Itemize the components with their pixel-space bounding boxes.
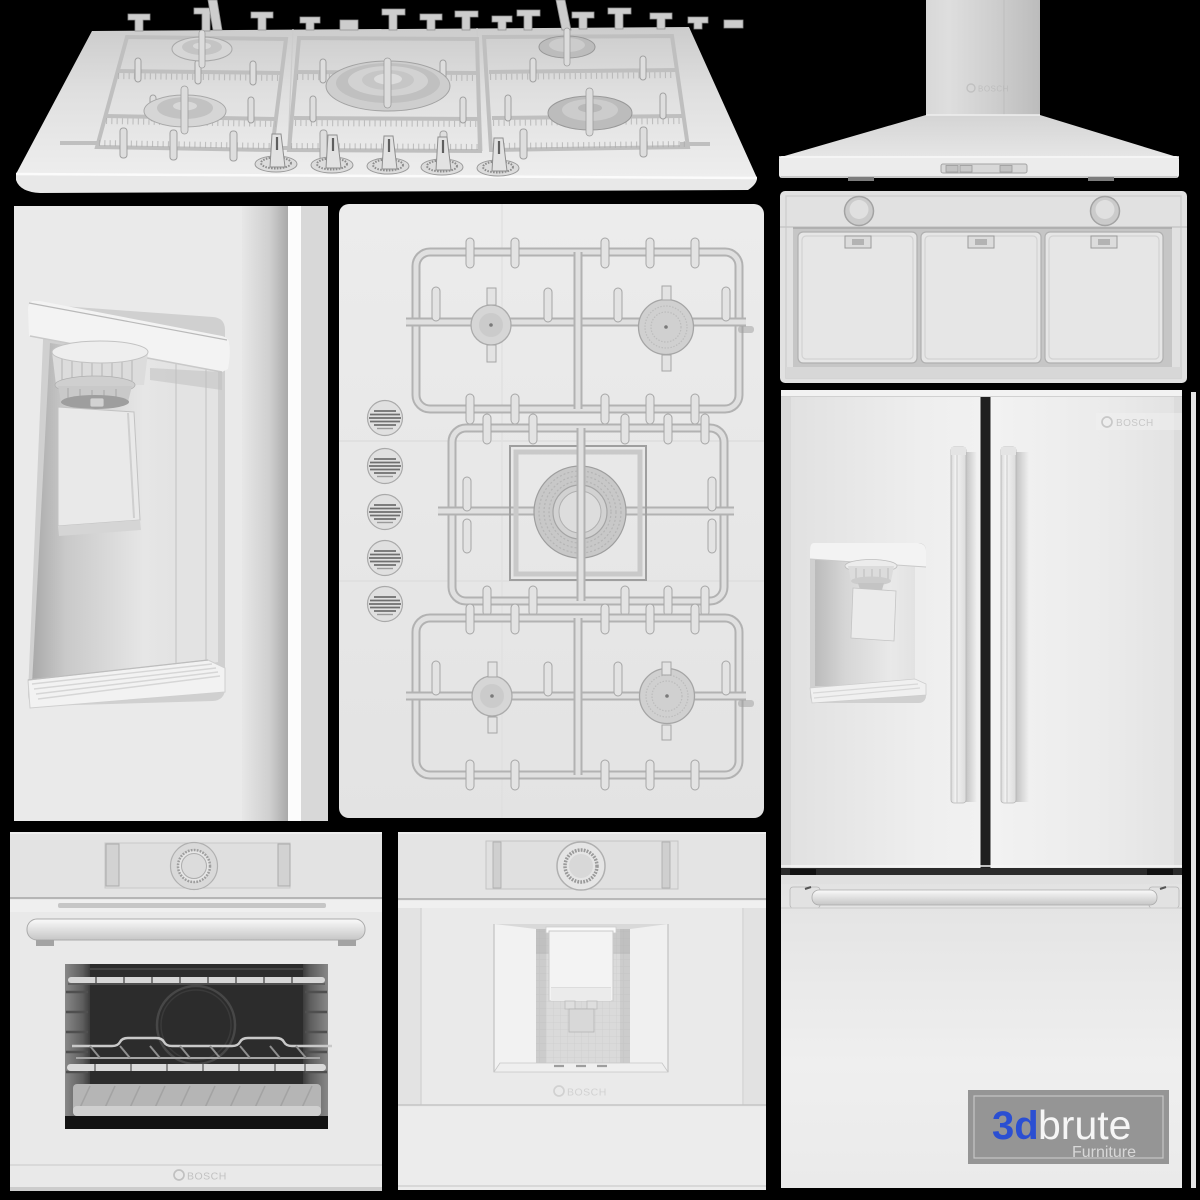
svg-text:3d: 3d (992, 1104, 1039, 1148)
svg-text:BOSCH: BOSCH (978, 85, 1009, 94)
svg-text:brute: brute (1038, 1102, 1131, 1148)
svg-text:BOSCH: BOSCH (567, 1087, 607, 1099)
svg-text:BOSCH: BOSCH (1116, 418, 1154, 429)
svg-text:BOSCH: BOSCH (187, 1171, 227, 1183)
svg-text:Furniture: Furniture (1072, 1144, 1136, 1161)
